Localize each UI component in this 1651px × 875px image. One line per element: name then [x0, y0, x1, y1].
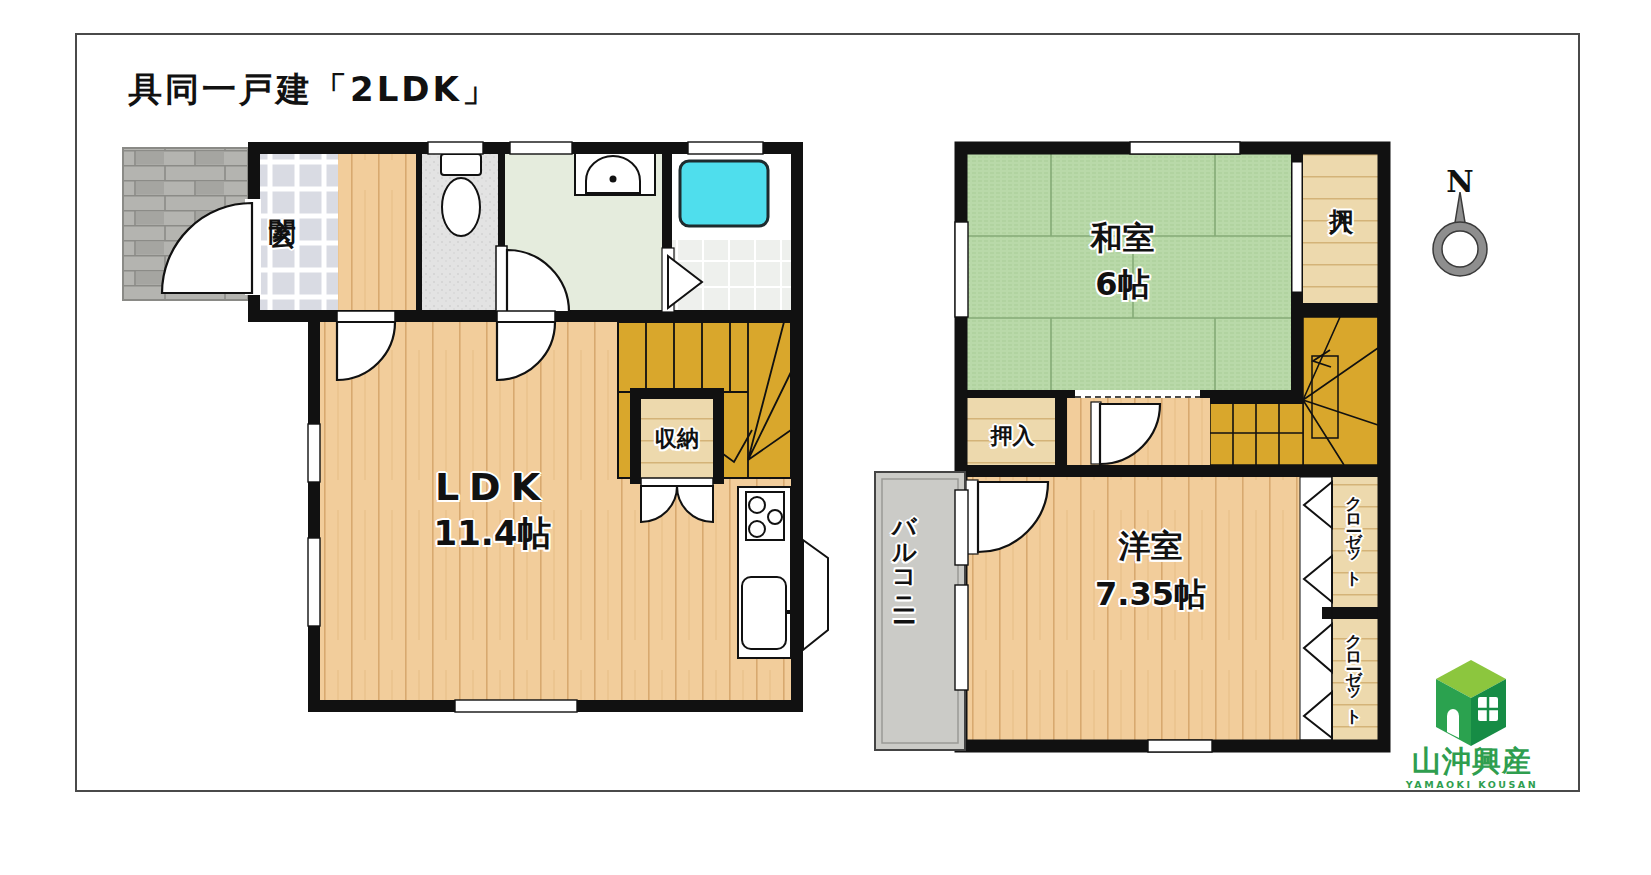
company-romaji: YAMAOKI KOUSAN [1384, 780, 1560, 790]
north-label: N [1432, 166, 1488, 198]
bathtub-icon [680, 161, 768, 226]
floorplan-drawing [0, 0, 1651, 875]
genkan-label: 玄関 [268, 198, 296, 282]
floorplan-page: 具同一戸建「2LDK」 玄関 LDK 11.4帖 収納 和室 6帖 押入 押入 … [0, 0, 1651, 875]
washbasin-icon [575, 153, 655, 195]
balcony [875, 472, 965, 750]
ldk-label: LDK [410, 468, 575, 508]
youshitsu-size-label: 7.35帖 [1058, 578, 1243, 612]
closet-bottom-label: クローゼット [1345, 622, 1362, 742]
oshiire-bottom-label: 押入 [970, 424, 1055, 447]
washitsu-size-label: 6帖 [1050, 268, 1195, 302]
page-title: 具同一戸建「2LDK」 [128, 72, 499, 108]
hall-floor [338, 148, 416, 316]
company-logo-icon [1436, 660, 1506, 746]
balcony-label: バルコニー [891, 500, 916, 680]
kitchen-bay-bump [803, 540, 828, 650]
company-name: 山沖興産 [1384, 746, 1560, 776]
washitsu-label: 和室 [1050, 222, 1195, 256]
ldk-size-label: 11.4帖 [400, 516, 585, 552]
toilet-icon [441, 154, 481, 236]
north-arrow-icon [1433, 192, 1487, 276]
youshitsu-label: 洋室 [1068, 530, 1233, 564]
closet-top-label: クローゼット [1345, 484, 1362, 604]
storage-label: 収納 [636, 427, 718, 450]
oshiire-top-label: 押入 [1328, 190, 1353, 270]
floor1-plan [123, 142, 828, 712]
